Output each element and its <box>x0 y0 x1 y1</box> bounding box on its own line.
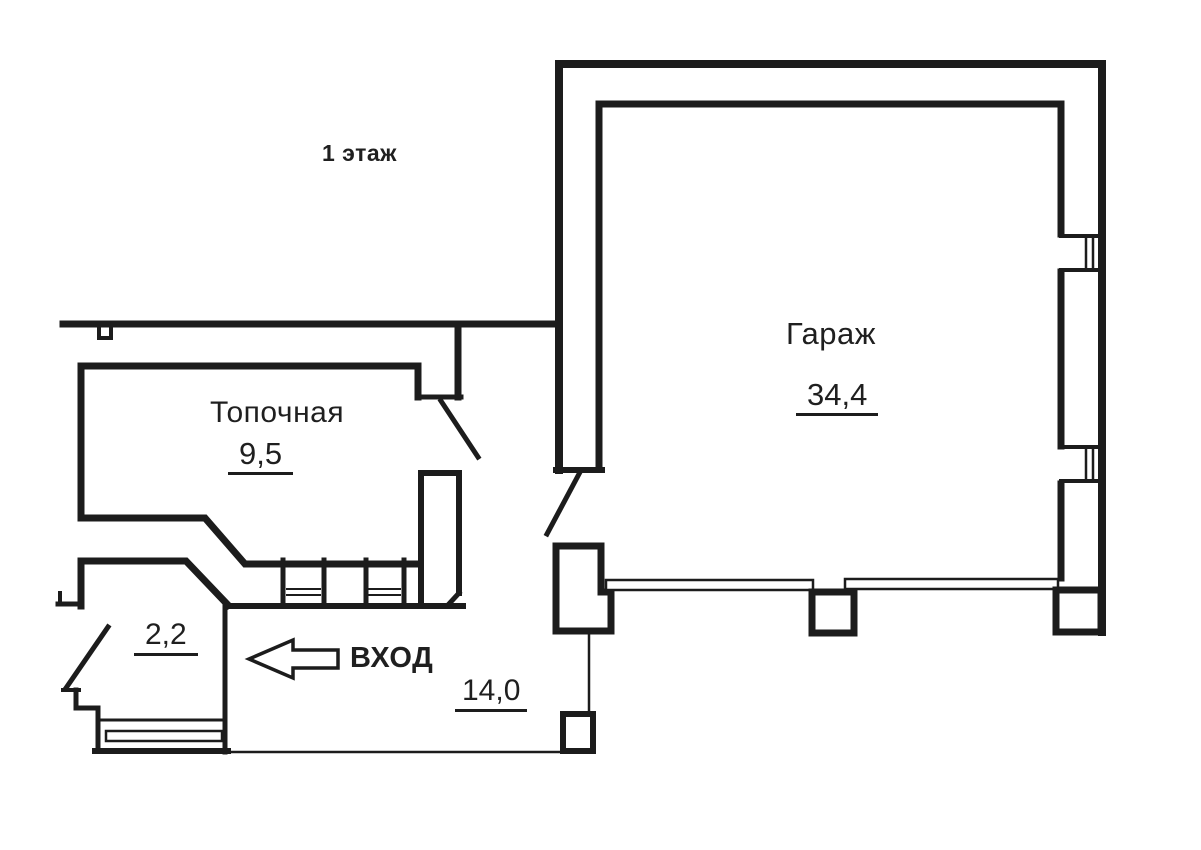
garage-label: Гараж <box>786 318 876 349</box>
boiler-room-label: Топочная <box>210 398 344 428</box>
floor-plan-drawing <box>0 0 1201 850</box>
garage-window-1 <box>1061 236 1099 270</box>
left-building-outer-walls <box>63 324 556 397</box>
garage-gate <box>556 546 1101 633</box>
gate-post-left <box>556 546 611 631</box>
gate-pillar <box>812 592 854 633</box>
entrance-label: ВХОД <box>350 644 433 673</box>
entrance-arrow-icon <box>249 640 338 678</box>
vestibule-area-value: 2,2 <box>134 620 198 656</box>
floor-title: 1 этаж <box>322 142 397 165</box>
garage-area-value: 34,4 <box>796 379 878 416</box>
vestibule-walls <box>58 561 228 752</box>
vestibule-door-swing <box>66 627 108 688</box>
hall-area: 14,0 <box>455 676 527 712</box>
floor-plan: 1 этаж Топочная 9,5 Гараж 34,4 2,2 14,0 … <box>0 0 1201 850</box>
garage-area: 34,4 <box>796 379 878 416</box>
hall-wall-stub <box>421 473 459 605</box>
vestibule-area: 2,2 <box>134 620 198 656</box>
hall-area-value: 14,0 <box>455 676 527 712</box>
garage-door-swing <box>547 474 579 534</box>
gate-leaf-right <box>845 579 1058 589</box>
gate-leaf-left <box>606 580 813 590</box>
vestibule-sill <box>106 731 222 741</box>
boiler-door-swing <box>441 401 478 457</box>
gate-post-right <box>1056 590 1101 632</box>
garage-window-2 <box>1061 447 1099 481</box>
wall-notch <box>99 326 111 338</box>
entry-pillar <box>563 633 593 751</box>
boiler-area-value: 9,5 <box>228 438 293 475</box>
boiler-room-area: 9,5 <box>228 438 293 475</box>
